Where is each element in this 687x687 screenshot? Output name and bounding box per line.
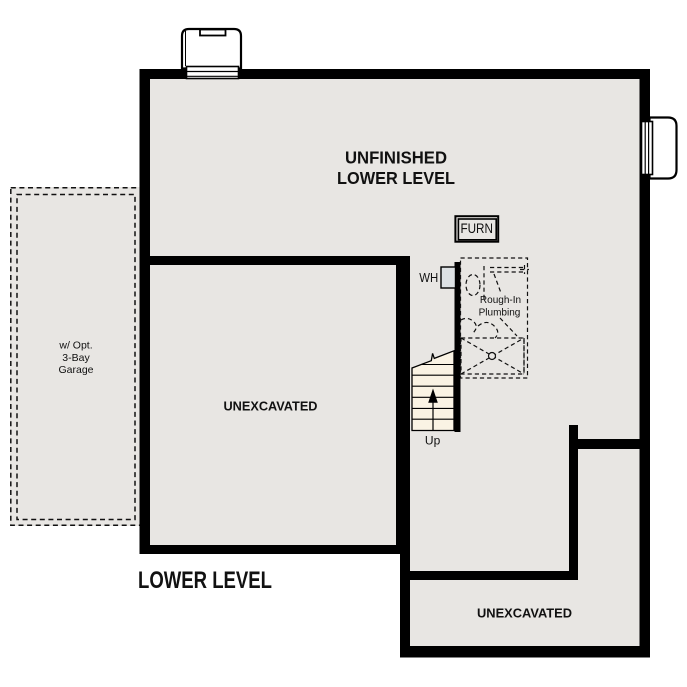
svg-text:Garage: Garage: [58, 364, 93, 376]
svg-text:w/ Opt.: w/ Opt.: [58, 340, 92, 352]
svg-text:UNFINISHED: UNFINISHED: [345, 148, 447, 168]
svg-text:FURN: FURN: [460, 221, 493, 236]
svg-text:UNEXCAVATED: UNEXCAVATED: [477, 606, 572, 621]
svg-text:UNEXCAVATED: UNEXCAVATED: [224, 399, 318, 414]
svg-text:WH: WH: [419, 270, 438, 285]
svg-text:Up: Up: [425, 434, 441, 448]
svg-text:LOWER LEVEL: LOWER LEVEL: [138, 567, 272, 594]
svg-text:LOWER LEVEL: LOWER LEVEL: [337, 168, 455, 188]
svg-text:Plumbing: Plumbing: [479, 308, 521, 319]
svg-text:3-Bay: 3-Bay: [62, 352, 90, 364]
svg-text:Rough-In: Rough-In: [480, 295, 521, 306]
